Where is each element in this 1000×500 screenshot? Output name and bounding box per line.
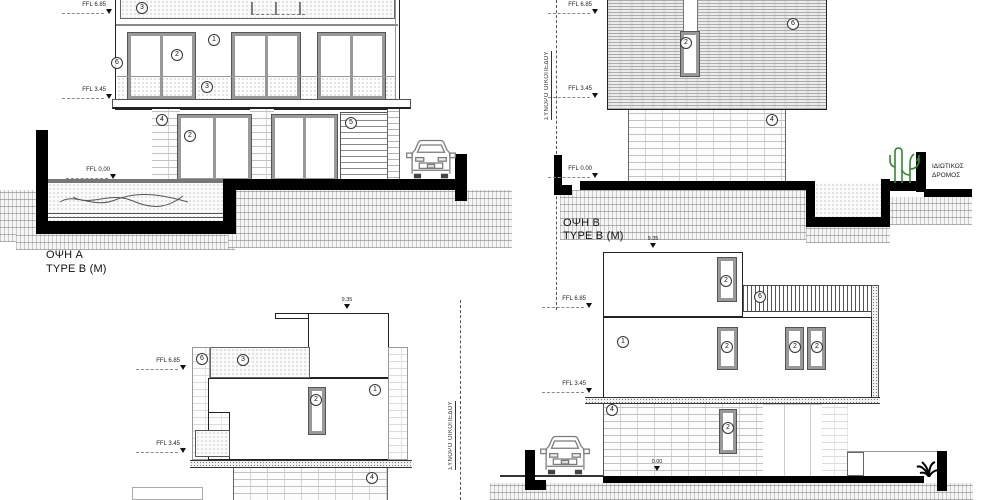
road-slab-solid — [924, 189, 972, 197]
level-label: FFL 6.85 — [568, 2, 592, 8]
keynote-1: 1 — [369, 384, 381, 396]
level-triangle-icon — [592, 9, 598, 14]
pool-line — [48, 213, 223, 214]
ground-hatch — [490, 483, 973, 500]
wall-end-strip — [387, 109, 400, 183]
level-datum-line — [66, 178, 108, 179]
stipple-block — [195, 430, 230, 457]
retaining-wall-foot — [525, 480, 546, 490]
keynote-2: 2 — [720, 275, 732, 287]
dimension-triangle-icon — [344, 304, 350, 309]
keynote-2: 2 — [184, 130, 196, 142]
brick-base-wall — [233, 468, 388, 500]
level-triangle-icon — [592, 173, 598, 178]
level-marker-ffl-345: FFL 3.45 — [542, 381, 594, 397]
pool-wall-left — [36, 130, 48, 233]
keynote-4: 4 — [606, 404, 618, 416]
dimension-triangle-icon — [654, 466, 660, 471]
level-label: FFL 3.45 — [562, 381, 586, 387]
level-datum-line — [548, 97, 590, 98]
elevation-b-clad-wall — [607, 0, 827, 110]
glass-door-section — [763, 404, 822, 477]
boundary-label: ΣΥΝΟΡΟ ΟΙΚΟΠΕΔΟΥ — [544, 40, 550, 120]
boundary-wall-foot — [554, 185, 572, 195]
keynote-6: 6 — [754, 291, 766, 303]
level-datum-line — [542, 392, 584, 393]
keynote-2: 2 — [680, 37, 692, 49]
level-marker-ffl-345: FFL 3.45 — [548, 86, 600, 102]
level-triangle-icon — [106, 9, 112, 14]
keynote-6: 6 — [196, 353, 208, 365]
keynote-4: 4 — [156, 114, 168, 126]
door-panel-line — [784, 405, 785, 478]
level-marker-ffl-685: FFL 6.85 — [136, 358, 188, 374]
level-triangle-icon — [106, 94, 112, 99]
level-datum-line — [62, 13, 104, 14]
ground-hatch — [16, 234, 235, 250]
pool-wall-right — [223, 179, 236, 229]
level-marker-ffl-000: FFL 0.00 — [548, 166, 600, 182]
keynote-5: 5 — [345, 117, 357, 129]
level-datum-line — [542, 307, 584, 308]
keynote-2: 2 — [310, 394, 322, 406]
pool-line — [48, 217, 223, 218]
main-floor-wall — [603, 317, 872, 398]
level-label: FFL 6.85 — [562, 296, 586, 302]
elevation-b-subtitle: TYPE B (M) — [563, 230, 624, 242]
wall-edge-band — [871, 285, 879, 403]
window-recess — [683, 0, 698, 33]
floor-slab — [585, 397, 880, 404]
level-datum-line — [136, 452, 178, 453]
level-marker-ffl-345: FFL 3.45 — [62, 87, 114, 103]
ground-slab-solid — [603, 476, 924, 483]
level-datum-line — [136, 369, 178, 370]
level-triangle-icon — [586, 388, 592, 393]
level-marker-ffl-345: FFL 3.45 — [136, 441, 188, 457]
level-marker-ffl-685: FFL 6.85 — [542, 296, 594, 312]
window-mullion — [303, 118, 306, 178]
dimension-triangle-icon — [650, 243, 656, 248]
brick-base-wall — [628, 110, 786, 183]
level-triangle-icon — [180, 448, 186, 453]
brick-pier — [822, 404, 848, 477]
window-mullion — [213, 118, 216, 178]
pit-floor — [806, 217, 890, 227]
slab-edge-line — [116, 24, 398, 26]
brick-garage-wall — [603, 404, 763, 477]
property-boundary-line — [460, 300, 461, 500]
keynote-3: 3 — [201, 81, 213, 93]
keynote-6: 6 — [787, 18, 799, 30]
keynote-3: 3 — [237, 354, 249, 366]
dimension-label: 9.35 — [648, 236, 659, 242]
balcony-slab — [112, 99, 411, 109]
keynote-6: 6 — [111, 57, 123, 69]
level-triangle-icon — [180, 365, 186, 370]
main-floor-wall — [208, 378, 389, 460]
road-label-line2: ΔΡΟΜΟΣ — [932, 172, 960, 179]
keynote-4: 4 — [366, 472, 378, 484]
level-triangle-icon — [592, 93, 598, 98]
level-marker-ffl-000: FFL 0.00 — [66, 167, 118, 183]
keynote-2: 2 — [722, 422, 734, 434]
elevation-b-title: ΟΨΗ B — [563, 217, 600, 229]
door-panel-line — [810, 405, 811, 478]
ground-hatch — [888, 197, 972, 225]
pit-water — [815, 183, 882, 219]
parapet-dimension: 9.35 — [332, 297, 362, 303]
floor-slab — [190, 460, 412, 468]
dimension-label: 0.00 — [652, 459, 663, 465]
level-triangle-icon — [110, 174, 116, 179]
keynote-4: 4 — [766, 114, 778, 126]
level-label: FFL 6.85 — [156, 358, 180, 364]
pool-floor — [36, 221, 236, 234]
level-datum-line — [548, 13, 590, 14]
boundary-label: ΣΥΝΟΡΟ ΟΙΚΟΠΕΔΟΥ — [448, 392, 454, 470]
parapet-hidden-line-marks — [251, 2, 305, 15]
level-triangle-icon — [586, 303, 592, 308]
keynote-2: 2 — [171, 49, 183, 61]
balcony-rail-stipple-band — [117, 76, 395, 99]
level-label: FFL 3.45 — [568, 86, 592, 92]
stipple-band — [210, 347, 310, 378]
level-datum-line — [548, 177, 590, 178]
wall-end-strip — [388, 347, 408, 460]
brick-pier — [250, 109, 274, 181]
ground-hatch — [806, 227, 890, 243]
sliding-door-2 — [272, 115, 337, 181]
level-marker-ffl-685: FFL 6.85 — [62, 2, 114, 18]
upper-volume — [308, 313, 389, 378]
pool-water-icon — [55, 187, 195, 213]
level-label: FFL 3.45 — [156, 441, 180, 447]
fence-line — [847, 451, 947, 452]
level-datum-line — [62, 98, 104, 99]
elevation-sheet: 3 1 2 6 3 4 2 5 FFL 6.85 FFL 3.45 FFL 0.… — [0, 0, 1000, 500]
ground-hatch — [228, 190, 512, 248]
level-marker-ffl-685: FFL 6.85 — [548, 2, 600, 18]
cactus-icon — [888, 139, 922, 183]
dimension-label: 9.35 — [342, 297, 353, 303]
level-label: FFL 6.85 — [82, 2, 106, 8]
wall-edge-line — [395, 0, 396, 109]
road-label-line1: ΙΔΙΩΤΙΚΟΣ — [932, 163, 964, 170]
keynote-2: 2 — [789, 341, 801, 353]
car-icon — [538, 432, 592, 477]
elevation-a-subtitle: TYPE B (M) — [46, 263, 107, 275]
plant-icon — [916, 461, 942, 477]
ground-level-dimension: 0.00 — [642, 459, 672, 465]
keynote-3: 3 — [136, 2, 148, 14]
keynote-1: 1 — [208, 34, 220, 46]
parapet-dimension: 9.35 — [638, 236, 668, 242]
level-label: FFL 0.00 — [86, 167, 110, 173]
level-label: FFL 0.00 — [568, 166, 592, 172]
keynote-1: 1 — [617, 336, 629, 348]
keynote-2: 2 — [811, 341, 823, 353]
roof-slab-tab — [275, 313, 310, 319]
level-label: FFL 3.45 — [82, 87, 106, 93]
keynote-2: 2 — [721, 341, 733, 353]
sliding-door-1 — [178, 115, 251, 181]
site-box — [847, 452, 864, 476]
site-element-outline — [132, 487, 203, 500]
ground-slab-solid — [580, 181, 808, 190]
car-icon — [404, 136, 458, 181]
elevation-a-title: ΟΨΗ A — [46, 249, 83, 261]
